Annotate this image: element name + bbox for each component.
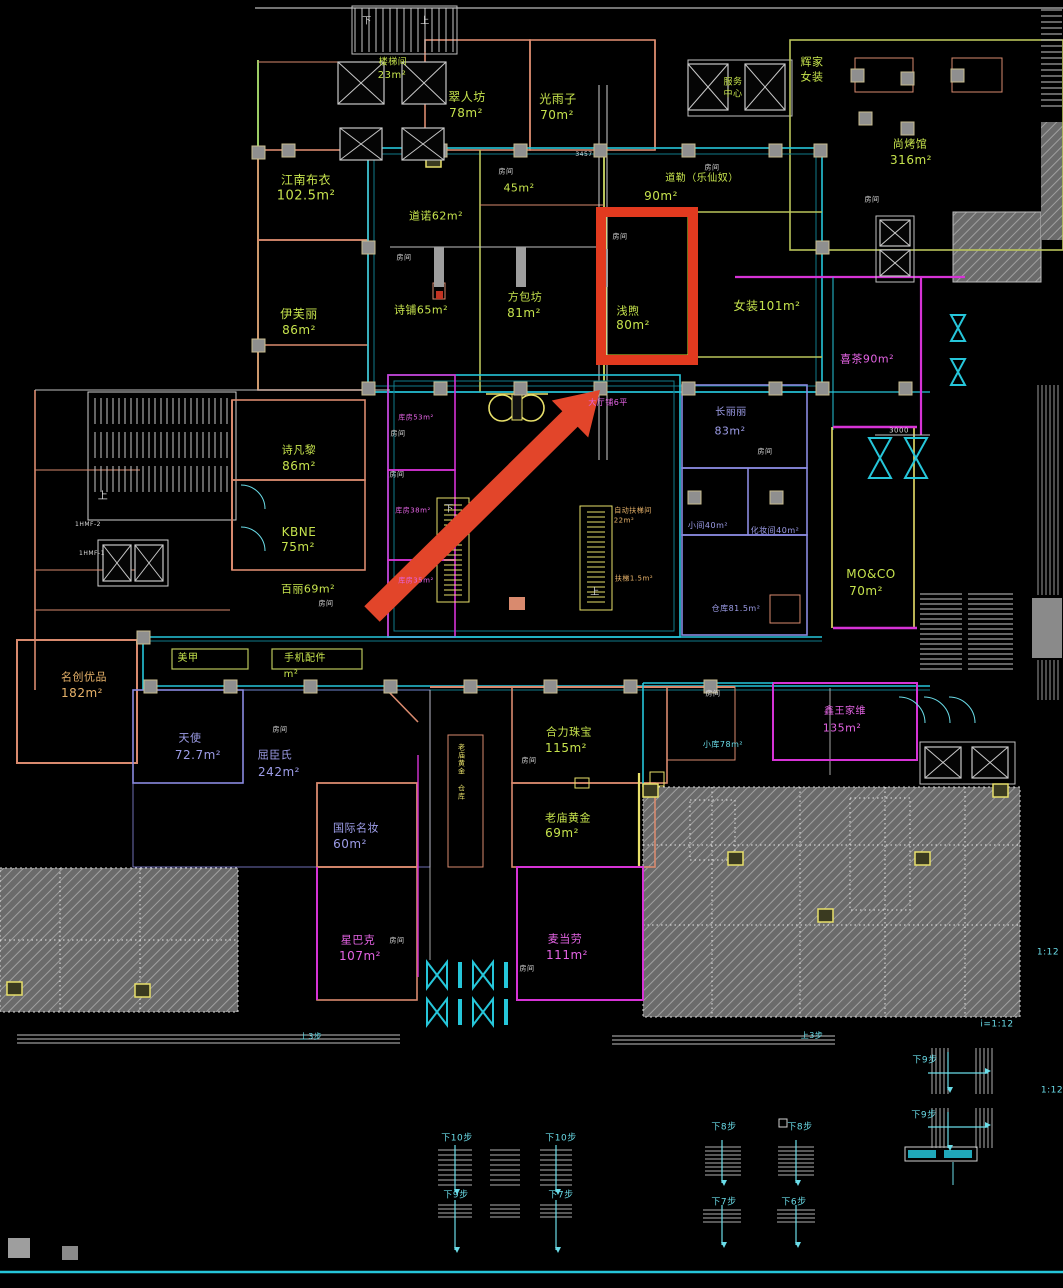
annotation-arrow bbox=[364, 390, 600, 622]
cad-linework bbox=[0, 0, 1063, 1288]
highlight-rectangle bbox=[601, 212, 693, 360]
annotations bbox=[364, 212, 693, 622]
floorplan-canvas: 楼梯间23m²翠人坊78m²光雨子70m²辉家女装服务中心尚烤馆316m²江南布… bbox=[0, 0, 1063, 1288]
walls bbox=[0, 6, 1063, 1272]
